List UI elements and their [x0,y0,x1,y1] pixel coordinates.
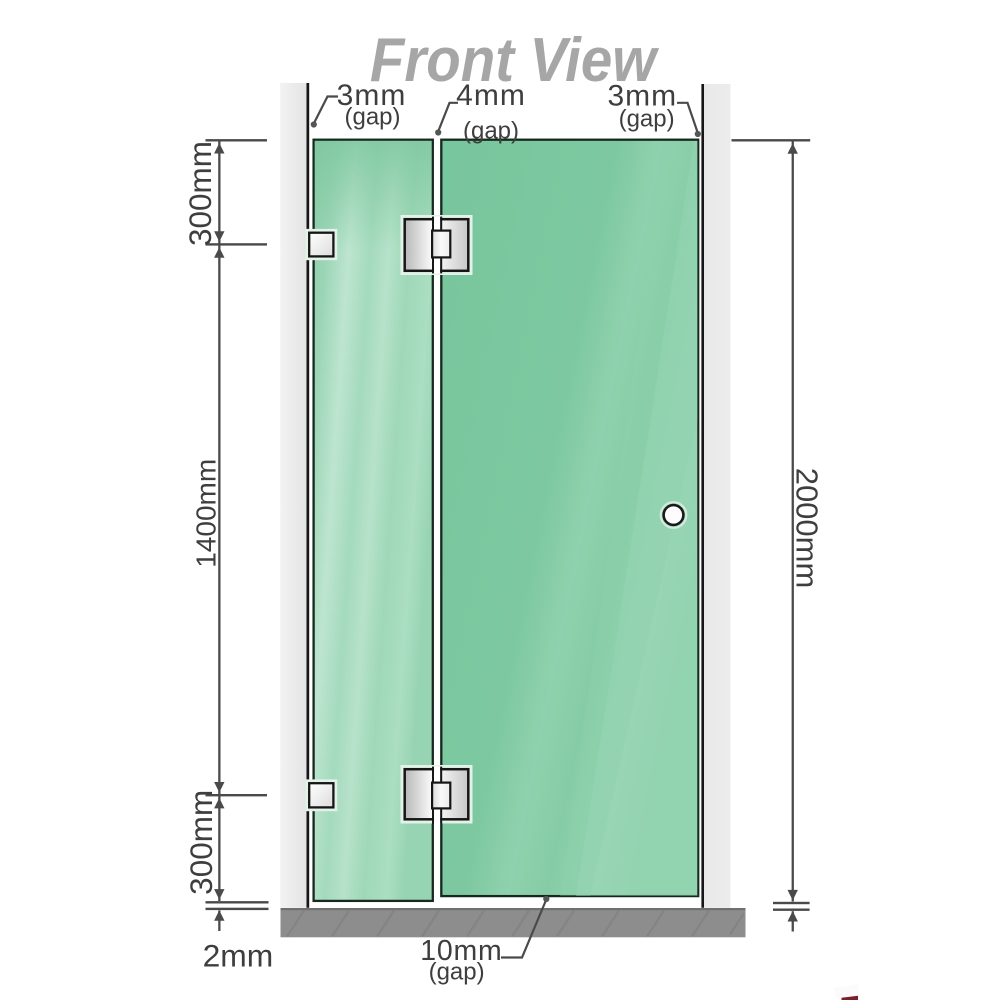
svg-text:300mm: 300mm [182,141,218,246]
svg-text:300mm: 300mm [183,790,219,895]
svg-text:2000mm: 2000mm [790,468,825,589]
svg-text:4mm: 4mm [456,79,526,112]
svg-text:(gap): (gap) [344,104,400,131]
svg-text:1400mm: 1400mm [190,459,221,568]
svg-text:2mm: 2mm [203,937,274,973]
svg-text:(gap): (gap) [429,959,485,986]
svg-text:(gap): (gap) [619,106,675,133]
svg-text:(gap): (gap) [463,118,519,145]
